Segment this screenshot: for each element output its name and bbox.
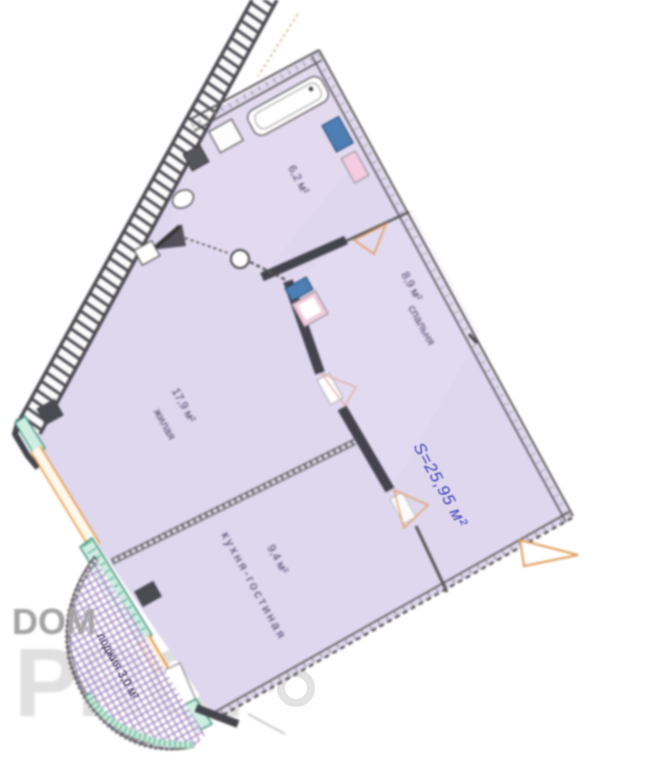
svg-text:DOM: DOM: [12, 601, 96, 642]
